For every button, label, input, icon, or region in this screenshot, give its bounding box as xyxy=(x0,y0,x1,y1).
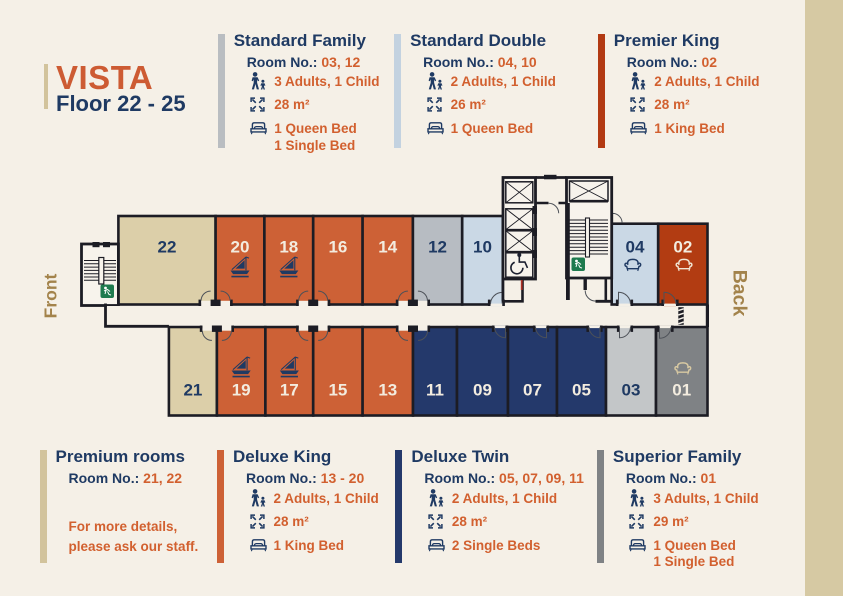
svg-text:09: 09 xyxy=(473,381,492,400)
svg-text:02: 02 xyxy=(673,237,692,256)
svg-text:03: 03 xyxy=(622,381,641,400)
svg-text:01: 01 xyxy=(672,381,691,400)
svg-text:21: 21 xyxy=(183,381,202,400)
svg-text:22: 22 xyxy=(158,237,177,256)
svg-text:19: 19 xyxy=(232,381,251,400)
svg-text:20: 20 xyxy=(231,237,250,256)
svg-text:11: 11 xyxy=(426,381,444,400)
svg-text:05: 05 xyxy=(572,381,591,400)
svg-text:04: 04 xyxy=(625,237,644,256)
svg-text:18: 18 xyxy=(279,237,298,256)
svg-text:15: 15 xyxy=(328,381,347,400)
svg-text:16: 16 xyxy=(328,237,347,256)
svg-text:13: 13 xyxy=(378,381,397,400)
svg-text:07: 07 xyxy=(523,381,542,400)
svg-text:10: 10 xyxy=(473,237,492,256)
svg-text:14: 14 xyxy=(378,237,397,256)
svg-text:12: 12 xyxy=(428,237,447,256)
svg-text:17: 17 xyxy=(280,381,299,400)
